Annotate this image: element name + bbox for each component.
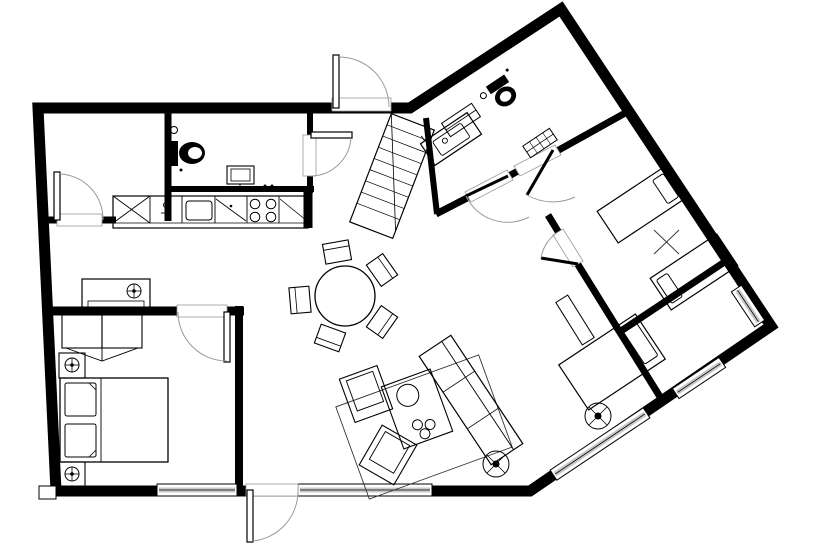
corner-step: [39, 486, 56, 499]
floor-plan-svg: [0, 0, 831, 555]
door-balcony: [246, 484, 298, 542]
window-bottom-left: [157, 484, 237, 496]
floor-plan-canvas: [0, 0, 831, 555]
door-entrance: [332, 55, 391, 111]
outer-wall: [38, 9, 771, 491]
